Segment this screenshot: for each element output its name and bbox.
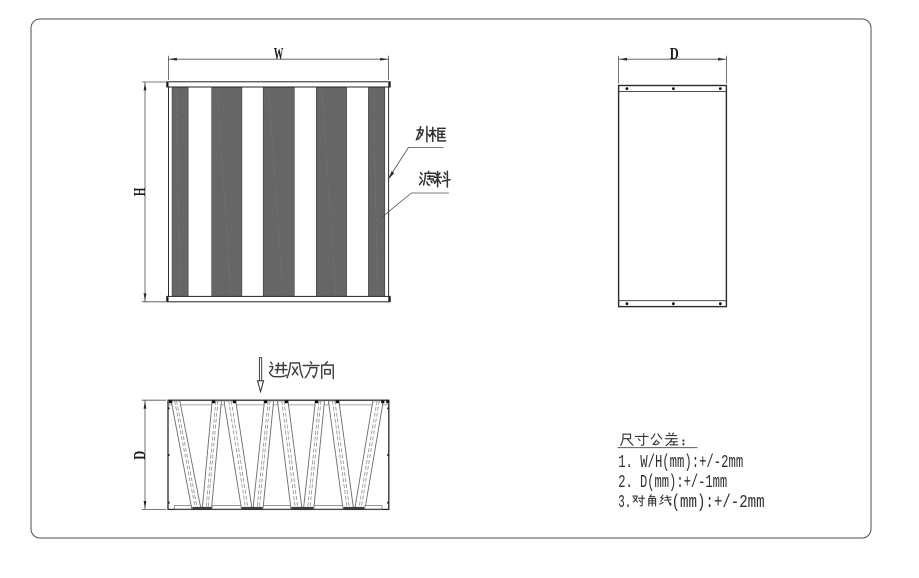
svg-text:D: D [130, 451, 149, 460]
svg-text:W: W [274, 44, 284, 63]
svg-text:(mm):+/-2mm: (mm):+/-2mm [672, 493, 765, 513]
svg-text:D: D [670, 44, 679, 63]
svg-text:H: H [130, 188, 149, 197]
svg-text:1. W/H(mm):+/-2mm: 1. W/H(mm):+/-2mm [618, 453, 743, 473]
svg-text:2. D(mm):+/-1mm: 2. D(mm):+/-1mm [618, 473, 727, 493]
svg-text:3.: 3. [618, 493, 631, 513]
